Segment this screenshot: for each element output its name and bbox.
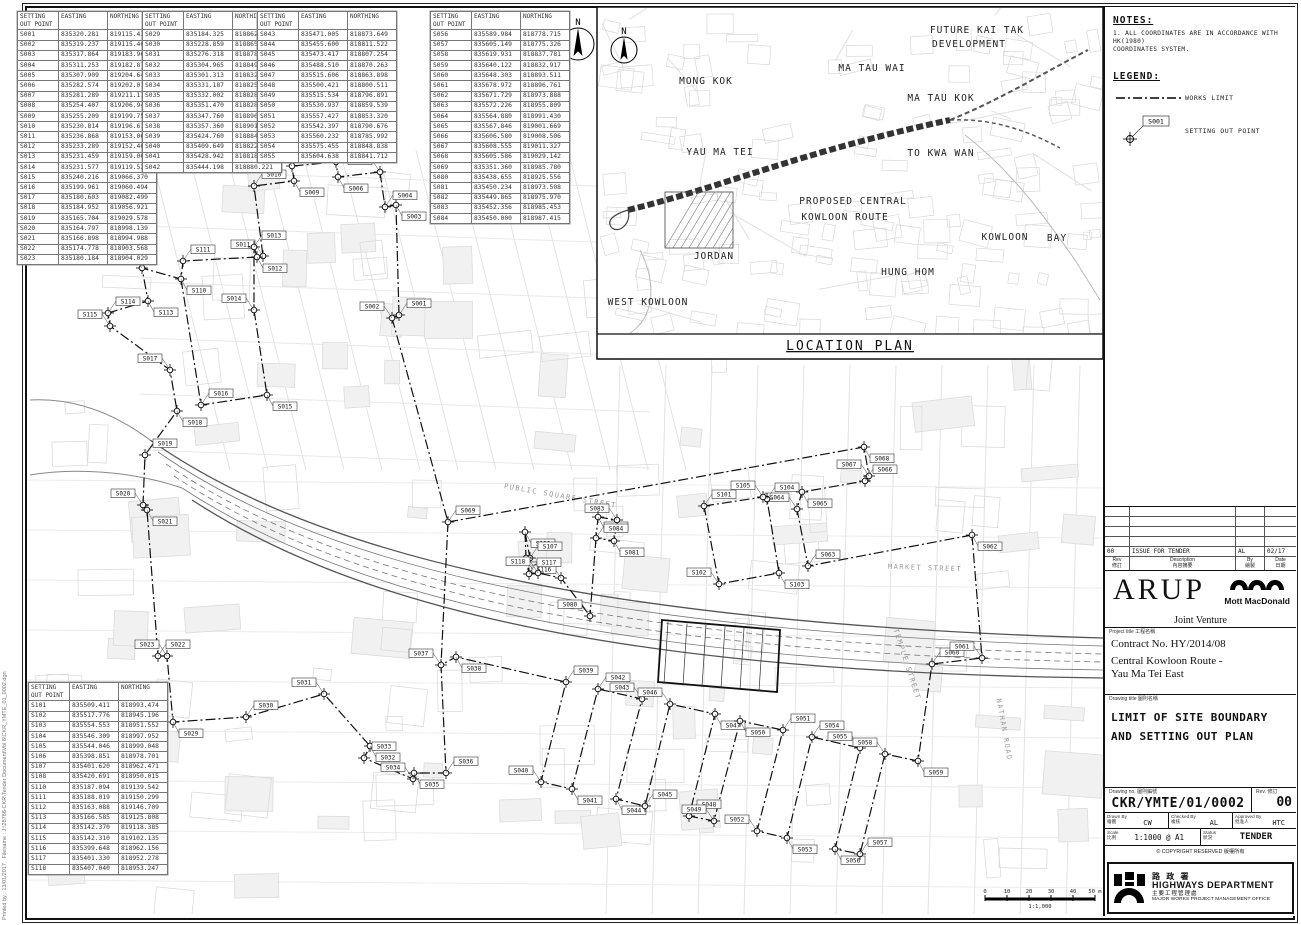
table-row: S113835166.585819125.808 bbox=[29, 813, 168, 823]
setting-out-point: S004 bbox=[379, 191, 417, 213]
table-cell: 835233.289 bbox=[59, 142, 108, 152]
dept-name-en: HIGHWAYS DEPARTMENT bbox=[1152, 881, 1274, 890]
table-cell: 819139.542 bbox=[119, 783, 168, 793]
table-row: S058835619.931818837.781 bbox=[431, 50, 570, 60]
table-row: S053835560.232818785.992 bbox=[258, 132, 397, 142]
building-outline bbox=[622, 554, 670, 592]
table-cell: S018 bbox=[18, 203, 59, 213]
table-cell: S016 bbox=[18, 183, 59, 193]
col-header: SETTING OUT POINT bbox=[431, 12, 472, 30]
table-cell: 818999.048 bbox=[119, 742, 168, 752]
col-header: NORTHING bbox=[348, 12, 397, 30]
setting-out-point: S059 bbox=[912, 755, 948, 777]
table-row: S083835452.356818985.453 bbox=[431, 203, 570, 213]
point-label: S003 bbox=[407, 213, 422, 220]
table-cell: 835567.846 bbox=[472, 122, 521, 132]
table-cell: S058 bbox=[431, 50, 472, 60]
table-cell: 835236.868 bbox=[59, 132, 108, 142]
table-cell: 835142.310 bbox=[70, 834, 119, 844]
table-cell: 835254.407 bbox=[59, 101, 108, 111]
scale-tick-label: 0 bbox=[983, 889, 986, 895]
setting-out-point: S044 bbox=[610, 793, 646, 815]
table-cell: S022 bbox=[18, 244, 59, 254]
point-label: S107 bbox=[543, 543, 558, 550]
point-label: S064 bbox=[770, 494, 785, 501]
table-cell: 835311.253 bbox=[59, 61, 108, 71]
col-header: NORTHING bbox=[119, 683, 168, 701]
col-header: EASTING bbox=[184, 12, 233, 30]
table-cell: S003 bbox=[18, 50, 59, 60]
highways-department-logo-icon bbox=[1113, 871, 1147, 905]
place-label: KOWLOON ROUTE bbox=[801, 212, 888, 223]
building-outline bbox=[959, 785, 982, 807]
table-cell: 818870.263 bbox=[348, 61, 397, 71]
table-cell: S052 bbox=[258, 122, 299, 132]
building-outline bbox=[936, 500, 965, 534]
table-cell: 835228.859 bbox=[184, 40, 233, 50]
building-outline bbox=[790, 475, 824, 521]
point-label: S051 bbox=[796, 715, 811, 722]
table-cell: S050 bbox=[258, 101, 299, 111]
table-cell: 835180.184 bbox=[59, 254, 108, 264]
building-outline bbox=[425, 301, 473, 338]
building-outline bbox=[1042, 751, 1104, 799]
table-row: S001835320.281819115.436 bbox=[18, 30, 157, 40]
slip-road bbox=[30, 471, 182, 488]
works-limit-line bbox=[441, 522, 448, 665]
project-title-label: Project title 工程名稱 bbox=[1105, 628, 1296, 635]
point-label: S033 bbox=[377, 743, 392, 750]
point-label: S022 bbox=[171, 641, 186, 648]
table-cell: S007 bbox=[18, 91, 59, 101]
setting-out-table-3: SETTING OUT POINTEASTINGNORTHINGS0438354… bbox=[257, 11, 397, 163]
drawing-title: LIMIT OF SITE BOUNDARY AND SETTING OUT P… bbox=[1105, 702, 1296, 752]
building-outline bbox=[407, 506, 427, 518]
setting-out-point: S057 bbox=[854, 838, 892, 860]
setting-out-point: S003 bbox=[390, 199, 426, 221]
table-cell: 835188.019 bbox=[70, 793, 119, 803]
col-header: SETTING OUT POINT bbox=[18, 12, 59, 30]
table-cell: 835307.909 bbox=[59, 71, 108, 81]
place-label: MA TAU WAI bbox=[838, 63, 905, 74]
table-cell: S034 bbox=[143, 81, 184, 91]
label-leader bbox=[598, 677, 606, 689]
table-row: S017835180.603819082.499 bbox=[18, 193, 157, 203]
table-row: S018835184.952819056.921 bbox=[18, 203, 157, 213]
revision-row: 00 ISSUE FOR TENDER AL 02/17 bbox=[1105, 546, 1296, 556]
table-cell: S048 bbox=[258, 81, 299, 91]
table-cell: S069 bbox=[431, 163, 472, 173]
table-cell: 818994.988 bbox=[108, 234, 157, 244]
point-label: S036 bbox=[459, 758, 474, 765]
revision-description: ISSUE FOR TENDER bbox=[1129, 547, 1235, 556]
location-plan-title: LOCATION PLAN bbox=[786, 339, 914, 354]
table-row: S114835142.370819118.385 bbox=[29, 823, 168, 833]
point-label: S118 bbox=[511, 558, 526, 565]
table-cell: 819056.921 bbox=[108, 203, 157, 213]
table-cell: 818952.278 bbox=[119, 854, 168, 864]
table-cell: S063 bbox=[431, 101, 472, 111]
setting-out-point: S018 bbox=[171, 405, 207, 427]
rev-value: 00 bbox=[1252, 795, 1296, 810]
point-label: S045 bbox=[658, 791, 673, 798]
table-cell: S031 bbox=[143, 50, 184, 60]
point-label: S059 bbox=[929, 769, 944, 776]
table-cell: 818991.430 bbox=[521, 112, 570, 122]
building-outline bbox=[381, 172, 411, 195]
table-cell: 818853.320 bbox=[348, 112, 397, 122]
col-header: EASTING bbox=[70, 683, 119, 701]
table-cell: S045 bbox=[258, 50, 299, 60]
table-cell: S066 bbox=[431, 132, 472, 142]
table-cell: 818975.970 bbox=[521, 193, 570, 203]
table-cell: 835471.005 bbox=[299, 30, 348, 40]
table-cell: 835401.620 bbox=[70, 762, 119, 772]
table-row: S043835471.005818873.649 bbox=[258, 30, 397, 40]
setting-out-point: S038 bbox=[450, 651, 486, 673]
checked-by-value: AL bbox=[1210, 819, 1218, 827]
table-cell: 835184.325 bbox=[184, 30, 233, 40]
point-label: S115 bbox=[83, 311, 98, 318]
setting-out-point: S012 bbox=[251, 251, 287, 273]
building-outline bbox=[263, 465, 299, 511]
table-row: S080835438.655818925.556 bbox=[431, 173, 570, 183]
label-leader bbox=[396, 205, 402, 216]
table-cell: S051 bbox=[258, 112, 299, 122]
table-cell: 835304.965 bbox=[184, 61, 233, 71]
col-header: SETTING OUT POINT bbox=[143, 12, 184, 30]
revision-by: AL bbox=[1235, 547, 1264, 556]
building-outline bbox=[581, 813, 622, 850]
point-label: S117 bbox=[542, 559, 557, 566]
table-cell: S017 bbox=[18, 193, 59, 203]
building-outline bbox=[88, 424, 108, 463]
table-cell: 835589.984 bbox=[472, 30, 521, 40]
table-row: S012835233.289819152.469 bbox=[18, 142, 157, 152]
table-cell: 818863.898 bbox=[348, 71, 397, 81]
building-outline bbox=[680, 427, 702, 447]
table-cell: 835605.586 bbox=[472, 152, 521, 162]
table-cell: 819150.299 bbox=[119, 793, 168, 803]
table-cell: S005 bbox=[18, 71, 59, 81]
point-label: S009 bbox=[305, 189, 320, 196]
table-row: S045835473.417818807.254 bbox=[258, 50, 397, 60]
table-cell: 835332.002 bbox=[184, 91, 233, 101]
table-cell: 835604.638 bbox=[299, 152, 348, 162]
table-row: S048835500.421818800.511 bbox=[258, 81, 397, 91]
table-cell: S118 bbox=[29, 864, 70, 874]
table-cell: 835166.898 bbox=[59, 234, 108, 244]
scale-note: 1:1,000 bbox=[1028, 904, 1051, 910]
setting-out-point: S068 bbox=[858, 441, 894, 463]
point-label: S062 bbox=[983, 543, 998, 550]
table-row: S107835401.620818962.471 bbox=[29, 762, 168, 772]
table-row: S106835398.851818978.701 bbox=[29, 752, 168, 762]
table-row: S049835515.534818796.891 bbox=[258, 91, 397, 101]
setting-out-label: SETTING OUT POINT bbox=[1185, 127, 1260, 135]
table-row: S063835572.226818955.809 bbox=[431, 101, 570, 111]
label-leader bbox=[864, 447, 870, 458]
point-label: S101 bbox=[717, 491, 732, 498]
table-cell: S068 bbox=[431, 152, 472, 162]
label-leader bbox=[246, 298, 254, 310]
table-cell: 835450.000 bbox=[472, 214, 521, 224]
point-label: S111 bbox=[196, 246, 211, 253]
table-cell: S116 bbox=[29, 844, 70, 854]
table-row: S014835231.577819119.520 bbox=[18, 163, 157, 173]
table-row: S050835530.937818859.539 bbox=[258, 101, 397, 111]
table-cell: 818973.888 bbox=[521, 91, 570, 101]
label-leader bbox=[715, 714, 721, 725]
building-outline bbox=[234, 874, 278, 898]
table-cell: 835165.704 bbox=[59, 214, 108, 224]
building-outline bbox=[542, 748, 564, 787]
point-label: S013 bbox=[267, 232, 282, 239]
point-label: S050 bbox=[751, 729, 766, 736]
label-leader bbox=[446, 761, 454, 773]
point-label: S029 bbox=[184, 730, 199, 737]
table-row: S057835605.149818775.326 bbox=[431, 40, 570, 50]
table-cell: S067 bbox=[431, 142, 472, 152]
point-label: S041 bbox=[583, 797, 598, 804]
table-row: S052835542.397818790.676 bbox=[258, 122, 397, 132]
setting-out-point: S052 bbox=[725, 815, 763, 837]
table-row: S112835163.088819146.709 bbox=[29, 803, 168, 813]
table-cell: 835401.330 bbox=[70, 854, 119, 864]
table-cell: S033 bbox=[143, 71, 184, 81]
table-cell: 819118.385 bbox=[119, 823, 168, 833]
label-leader bbox=[145, 443, 153, 455]
table-cell: S013 bbox=[18, 152, 59, 162]
scale-tick-label: 10 bbox=[1004, 889, 1011, 895]
table-cell: S108 bbox=[29, 772, 70, 782]
point-label: S114 bbox=[121, 298, 136, 305]
point-label: S019 bbox=[158, 440, 173, 447]
building-outline bbox=[534, 431, 576, 452]
table-cell: 835452.356 bbox=[472, 203, 521, 213]
project-name-line1: Central Kowloon Route - bbox=[1111, 655, 1290, 668]
table-row: S066835606.580819008.506 bbox=[431, 132, 570, 142]
table-cell: 818925.556 bbox=[521, 173, 570, 183]
building-outline bbox=[840, 469, 861, 483]
status-value: TENDER bbox=[1240, 832, 1273, 842]
point-label: S044 bbox=[627, 807, 642, 814]
point-label: S032 bbox=[381, 754, 396, 761]
table-cell: 818978.701 bbox=[119, 752, 168, 762]
label-leader bbox=[877, 742, 885, 754]
table-cell: S060 bbox=[431, 71, 472, 81]
place-label: TO KWA WAN bbox=[907, 148, 974, 159]
table-row: S117835401.330818952.278 bbox=[29, 854, 168, 864]
label-leader bbox=[662, 692, 670, 704]
point-label: S065 bbox=[813, 500, 828, 507]
place-label: WEST KOWLOON bbox=[608, 297, 689, 308]
place-label: KOWLOON bbox=[981, 232, 1028, 243]
setting-out-point: S013 bbox=[248, 231, 286, 253]
table-cell: S110 bbox=[29, 783, 70, 793]
table-cell: S113 bbox=[29, 813, 70, 823]
table-cell: 818841.712 bbox=[348, 152, 397, 162]
table-cell: S041 bbox=[143, 152, 184, 162]
table-cell: 818832.917 bbox=[521, 61, 570, 71]
table-cell: 835166.585 bbox=[70, 813, 119, 823]
table-row: S103835554.553818951.552 bbox=[29, 721, 168, 731]
setting-out-point: S041 bbox=[566, 783, 602, 805]
table-cell: S064 bbox=[431, 112, 472, 122]
table-cell: S054 bbox=[258, 142, 299, 152]
table-cell: S004 bbox=[18, 61, 59, 71]
panel-spacer bbox=[1105, 171, 1296, 506]
label-leader bbox=[177, 411, 183, 422]
setting-out-point: S045 bbox=[639, 790, 677, 812]
table-cell: S053 bbox=[258, 132, 299, 142]
label-leader bbox=[316, 682, 324, 694]
table-row: S002835319.237819115.467 bbox=[18, 40, 157, 50]
table-row: S068835605.586819029.142 bbox=[431, 152, 570, 162]
street-line bbox=[140, 226, 650, 244]
place-label: FUTURE KAI TAK bbox=[930, 25, 1024, 36]
place-label: MA TAU KOK bbox=[907, 93, 974, 104]
setting-out-point: S030 bbox=[240, 701, 278, 723]
setting-out-point: S111 bbox=[177, 245, 215, 267]
building-outline bbox=[563, 609, 588, 636]
table-row: S062835671.729818973.888 bbox=[431, 91, 570, 101]
revision-number: 00 bbox=[1105, 547, 1129, 556]
label-leader bbox=[433, 653, 441, 665]
point-label: S080 bbox=[563, 601, 578, 608]
table-row: S082835449.865818975.970 bbox=[431, 193, 570, 203]
point-label: S017 bbox=[143, 355, 158, 362]
label-leader bbox=[201, 393, 209, 405]
label-leader bbox=[808, 554, 816, 566]
label-leader bbox=[294, 181, 300, 192]
street-line bbox=[790, 365, 804, 915]
setting-out-point: S081 bbox=[608, 535, 644, 557]
table-cell: 835163.088 bbox=[70, 803, 119, 813]
table-row: S007835281.289819211.112 bbox=[18, 91, 157, 101]
table-cell: S103 bbox=[29, 721, 70, 731]
street-line bbox=[27, 480, 1103, 488]
table-row: S084835450.000818987.415 bbox=[431, 214, 570, 224]
table-cell: 835530.937 bbox=[299, 101, 348, 111]
col-header: EASTING bbox=[59, 12, 108, 30]
table-row: S111835188.019819150.299 bbox=[29, 793, 168, 803]
table-cell: 818785.992 bbox=[348, 132, 397, 142]
building-outline bbox=[341, 223, 376, 253]
label-leader bbox=[338, 177, 344, 188]
table-cell: 818955.809 bbox=[521, 101, 570, 111]
table-row: S044835455.600818811.522 bbox=[258, 40, 397, 50]
label-leader bbox=[598, 517, 604, 528]
point-label: S042 bbox=[611, 674, 626, 681]
table-cell: 818953.247 bbox=[119, 864, 168, 874]
table-row: S116835399.648818962.156 bbox=[29, 844, 168, 854]
table-cell: S038 bbox=[143, 122, 184, 132]
point-label: S035 bbox=[425, 781, 440, 788]
scale-status-row: Scale比例 1:1000 @ A1 Status狀況 TENDER bbox=[1105, 829, 1296, 846]
table-cell: S105 bbox=[29, 742, 70, 752]
building-outline bbox=[775, 667, 834, 684]
table-cell: 819029.142 bbox=[521, 152, 570, 162]
table-cell: 818973.508 bbox=[521, 183, 570, 193]
table-cell: 835575.455 bbox=[299, 142, 348, 152]
building-outline bbox=[387, 686, 428, 727]
project-title-block: Project title 工程名稱 Contract No. HY/2014/… bbox=[1105, 628, 1296, 695]
table-cell: S117 bbox=[29, 854, 70, 864]
point-label: S004 bbox=[398, 192, 413, 199]
slip-road bbox=[30, 400, 150, 440]
table-cell: 835648.303 bbox=[472, 71, 521, 81]
street-line bbox=[974, 365, 988, 915]
table-cell: 818848.838 bbox=[348, 142, 397, 152]
legend-heading: LEGEND: bbox=[1113, 71, 1288, 82]
north-needle bbox=[574, 28, 583, 56]
table-cell: 835240.216 bbox=[59, 173, 108, 183]
point-label: S020 bbox=[116, 490, 131, 497]
table-cell: S030 bbox=[143, 40, 184, 50]
point-label: S067 bbox=[842, 461, 857, 468]
table-row: S016835199.961819060.494 bbox=[18, 183, 157, 193]
works-limit-line-icon bbox=[1113, 95, 1185, 101]
drawn-by-value: CW bbox=[1143, 819, 1151, 827]
setting-out-point: S051 bbox=[777, 714, 815, 736]
table-row: S060835648.303818893.511 bbox=[431, 71, 570, 81]
table-cell: 818811.522 bbox=[348, 40, 397, 50]
scale-tick-label: 50 m bbox=[1088, 889, 1102, 895]
table-row: S054835575.455818848.838 bbox=[258, 142, 397, 152]
point-label: S046 bbox=[643, 689, 658, 696]
revision-date: 02/17 bbox=[1264, 547, 1296, 556]
table-cell: 835488.510 bbox=[299, 61, 348, 71]
table-cell: 835560.232 bbox=[299, 132, 348, 142]
table-cell: 835428.942 bbox=[184, 152, 233, 162]
table-cell: 818951.552 bbox=[119, 721, 168, 731]
table-cell: 835546.309 bbox=[70, 732, 119, 742]
setting-out-point: S105 bbox=[731, 481, 769, 503]
table-cell: S083 bbox=[431, 203, 472, 213]
table-row: S115835142.310819102.135 bbox=[29, 834, 168, 844]
point-label: S038 bbox=[467, 665, 482, 672]
table-cell: 835438.655 bbox=[472, 173, 521, 183]
building-outline bbox=[806, 784, 831, 806]
notes-body: 1. ALL COORDINATES ARE IN ACCORDANCE WIT… bbox=[1113, 30, 1283, 54]
label-leader bbox=[456, 657, 462, 668]
label-leader bbox=[566, 670, 574, 682]
signatures-row: Drawn By繪圖 CW Checked By複核 AL Approved B… bbox=[1105, 813, 1296, 829]
col-header: EASTING bbox=[472, 12, 521, 30]
table-cell: 819008.506 bbox=[521, 132, 570, 142]
table-cell: 835564.880 bbox=[472, 112, 521, 122]
table-cell: 835509.411 bbox=[70, 701, 119, 711]
point-label: S002 bbox=[365, 303, 380, 310]
table-cell: S115 bbox=[29, 834, 70, 844]
table-row: S067835608.555819011.327 bbox=[431, 142, 570, 152]
building-outline bbox=[1061, 514, 1095, 545]
setting-out-point-icon: S001 bbox=[1113, 114, 1185, 148]
point-label: S006 bbox=[349, 185, 364, 192]
highways-department-block: 路 政 署 HIGHWAYS DEPARTMENT 主要工程管理處 MAJOR … bbox=[1107, 862, 1294, 914]
table-cell: 835164.797 bbox=[59, 224, 108, 234]
table-cell: 835187.094 bbox=[70, 783, 119, 793]
building-outline bbox=[1058, 808, 1089, 842]
table-cell: 835515.606 bbox=[299, 71, 348, 81]
point-label: S023 bbox=[140, 641, 155, 648]
place-label: HUNG HOM bbox=[881, 267, 935, 278]
table-cell: S039 bbox=[143, 132, 184, 142]
street-line bbox=[1020, 365, 1034, 915]
building-outline bbox=[376, 773, 434, 806]
table-cell: 835230.814 bbox=[59, 122, 108, 132]
